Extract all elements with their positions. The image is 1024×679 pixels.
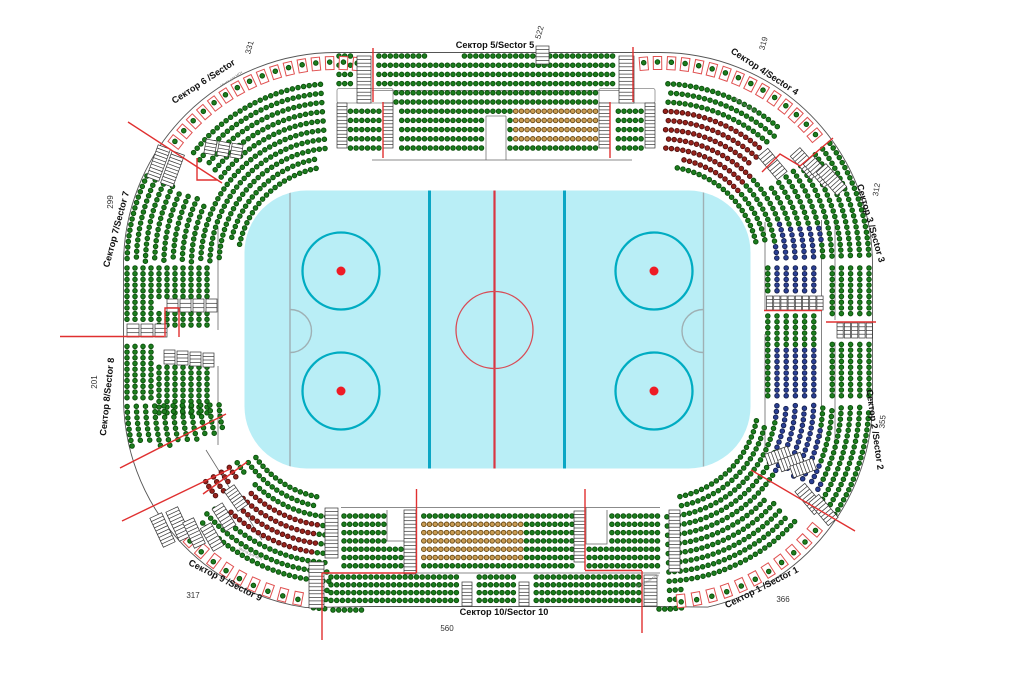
svg-text:355: 355 (877, 414, 887, 429)
svg-text:317: 317 (186, 591, 200, 600)
svg-text:201: 201 (90, 375, 99, 389)
svg-text:560: 560 (440, 624, 454, 633)
svg-text:Сектор 5/Sector 5: Сектор 5/Sector 5 (456, 40, 534, 50)
svg-text:366: 366 (776, 595, 790, 604)
svg-text:Сектор 10/Sector 10: Сектор 10/Sector 10 (460, 607, 549, 617)
svg-text:299: 299 (106, 195, 115, 209)
